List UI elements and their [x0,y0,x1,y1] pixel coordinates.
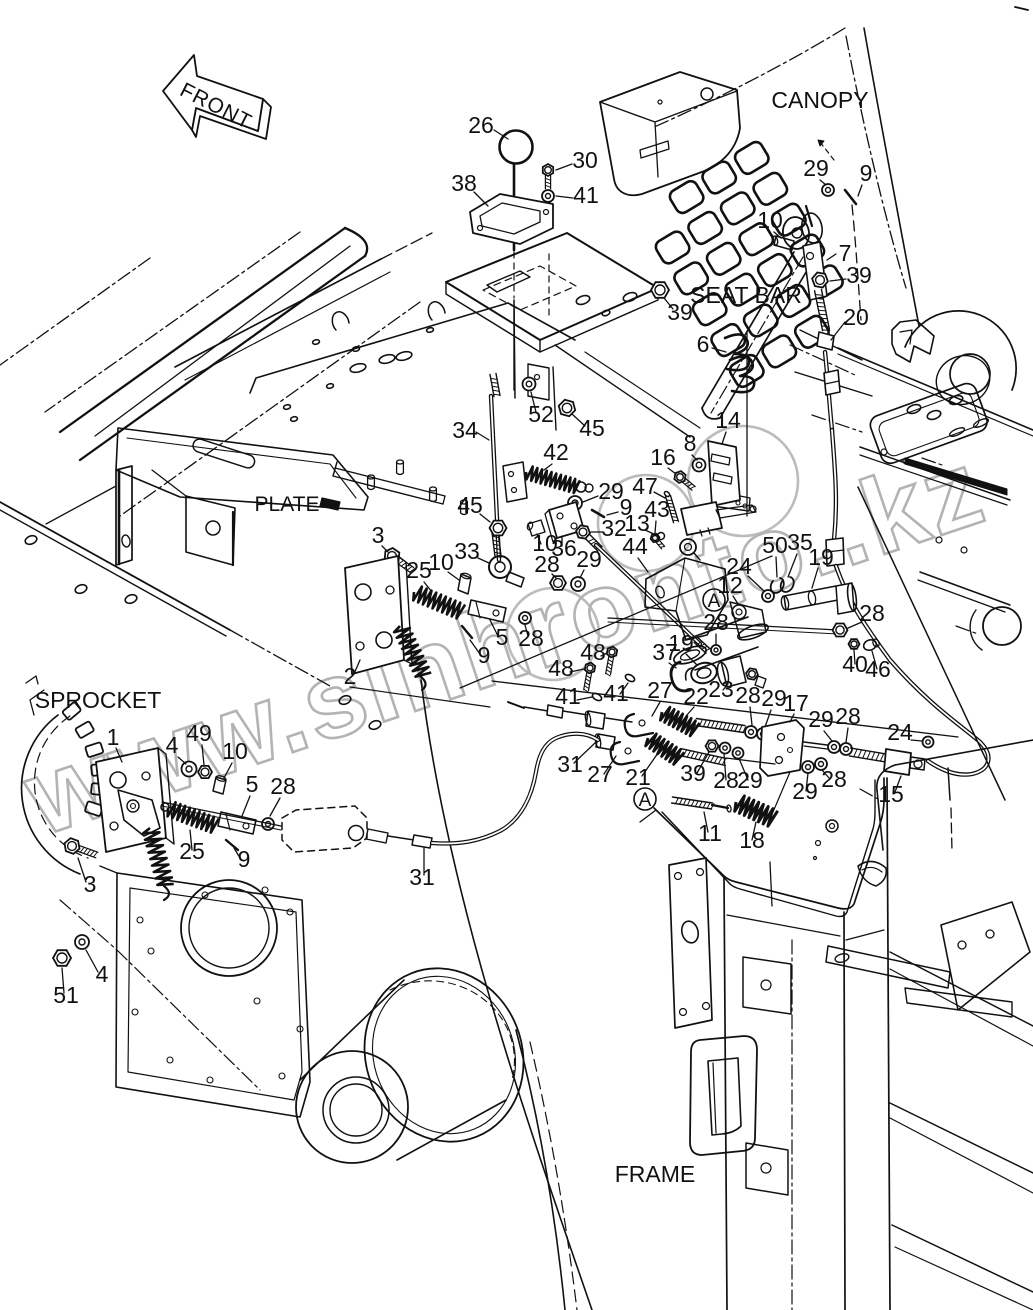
svg-text:10: 10 [428,549,454,575]
svg-text:27: 27 [647,677,673,703]
svg-text:31: 31 [409,864,435,890]
svg-text:48: 48 [580,639,606,665]
svg-text:PLATE: PLATE [255,493,320,516]
svg-text:28: 28 [518,625,544,651]
svg-text:1: 1 [107,724,120,750]
svg-text:29: 29 [576,546,602,572]
svg-text:5: 5 [496,624,509,650]
svg-text:41: 41 [573,182,599,208]
svg-text:25: 25 [179,838,205,864]
svg-text:19: 19 [668,630,694,656]
svg-text:10: 10 [222,738,248,764]
svg-text:41: 41 [555,683,581,709]
svg-text:30: 30 [572,147,598,173]
svg-text:2: 2 [344,663,357,689]
svg-text:50: 50 [762,532,788,558]
svg-text:9: 9 [238,846,251,872]
svg-text:CANOPY: CANOPY [771,87,868,113]
svg-text:SPROCKET: SPROCKET [35,687,162,713]
svg-text:6: 6 [697,331,710,357]
svg-text:45: 45 [579,415,605,441]
svg-text:A: A [639,790,652,811]
svg-text:28: 28 [534,551,560,577]
svg-text:3: 3 [84,871,97,897]
svg-text:42: 42 [543,439,569,465]
svg-text:15: 15 [878,781,904,807]
svg-text:28: 28 [859,600,885,626]
svg-text:49: 49 [186,720,212,746]
svg-text:29: 29 [792,778,818,804]
svg-text:23: 23 [708,676,734,702]
svg-text:8: 8 [684,430,697,456]
svg-text:26: 26 [468,112,494,138]
svg-text:24: 24 [887,719,913,745]
svg-text:9: 9 [860,160,873,186]
svg-text:14: 14 [715,407,741,433]
svg-text:19: 19 [808,544,834,570]
svg-text:46: 46 [865,656,891,682]
svg-text:20: 20 [843,304,869,330]
svg-text:29: 29 [808,706,834,732]
svg-text:28: 28 [835,703,861,729]
svg-text:51: 51 [53,982,79,1008]
svg-text:9: 9 [478,642,491,668]
svg-text:29: 29 [737,767,763,793]
svg-text:29: 29 [803,155,829,181]
svg-text:10: 10 [757,207,783,233]
svg-text:41: 41 [603,680,629,706]
svg-text:38: 38 [451,170,477,196]
svg-text:17: 17 [783,690,809,716]
svg-text:22: 22 [683,683,709,709]
svg-text:5: 5 [246,771,259,797]
svg-text:11: 11 [698,820,722,846]
svg-text:28: 28 [703,609,729,635]
svg-text:3: 3 [372,522,385,548]
svg-text:33: 33 [454,538,480,564]
svg-text:16: 16 [650,444,676,470]
svg-text:28: 28 [821,766,847,792]
svg-text:4: 4 [96,961,109,987]
svg-text:39: 39 [667,299,693,325]
svg-text:28: 28 [270,773,296,799]
svg-text:44: 44 [622,533,648,559]
svg-text:39: 39 [846,262,872,288]
svg-text:27: 27 [587,761,613,787]
svg-text:FRAME: FRAME [615,1161,696,1187]
svg-text:52: 52 [528,401,554,427]
svg-text:31: 31 [557,751,583,777]
svg-text:45: 45 [457,492,483,518]
svg-text:4: 4 [166,732,179,758]
svg-text:48: 48 [548,655,574,681]
svg-text:34: 34 [452,417,478,443]
svg-text:SEAT BAR: SEAT BAR [690,282,802,308]
svg-text:28: 28 [735,682,761,708]
